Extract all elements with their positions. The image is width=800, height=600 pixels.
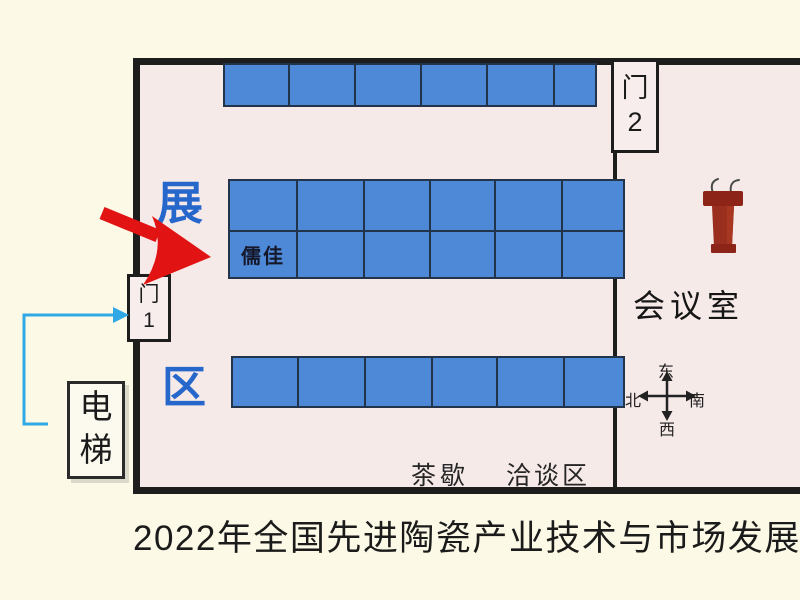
negotiation-area-label: 洽谈区 xyxy=(506,456,590,492)
door-2-char: 门 xyxy=(622,72,649,106)
tea-break-label: 茶歇 xyxy=(411,456,469,492)
door-2-num: 2 xyxy=(627,106,642,140)
meeting-room-label: 会议室 xyxy=(633,281,744,327)
podium-icon xyxy=(698,174,746,256)
door-1-num: 1 xyxy=(143,308,155,334)
door-2: 门 2 xyxy=(611,62,659,153)
event-title-caption: 2022年全国先进陶瓷产业技术与市场发展 xyxy=(133,510,800,561)
compass-label-east: 东 xyxy=(658,358,674,382)
zone-label-top: 展 xyxy=(157,180,203,226)
compass-label-north: 北 xyxy=(625,387,641,411)
elevator-char-2: 梯 xyxy=(80,430,113,473)
zone-label-bottom: 区 xyxy=(162,366,206,410)
door-1-char: 门 xyxy=(139,282,160,308)
compass-label-west: 西 xyxy=(659,416,675,440)
elevator-box: 电 梯 xyxy=(67,381,125,479)
door-1: 门 1 xyxy=(127,274,171,342)
compass-label-south: 南 xyxy=(689,387,705,411)
floor-plan-diagram: 儒佳 门 2 门 1 电 梯 展 区 会议室 茶歇 洽谈区 东 南 西 北 xyxy=(0,0,800,600)
compass: 东 南 西 北 xyxy=(612,348,722,440)
elevator-char-1: 电 xyxy=(80,387,113,430)
